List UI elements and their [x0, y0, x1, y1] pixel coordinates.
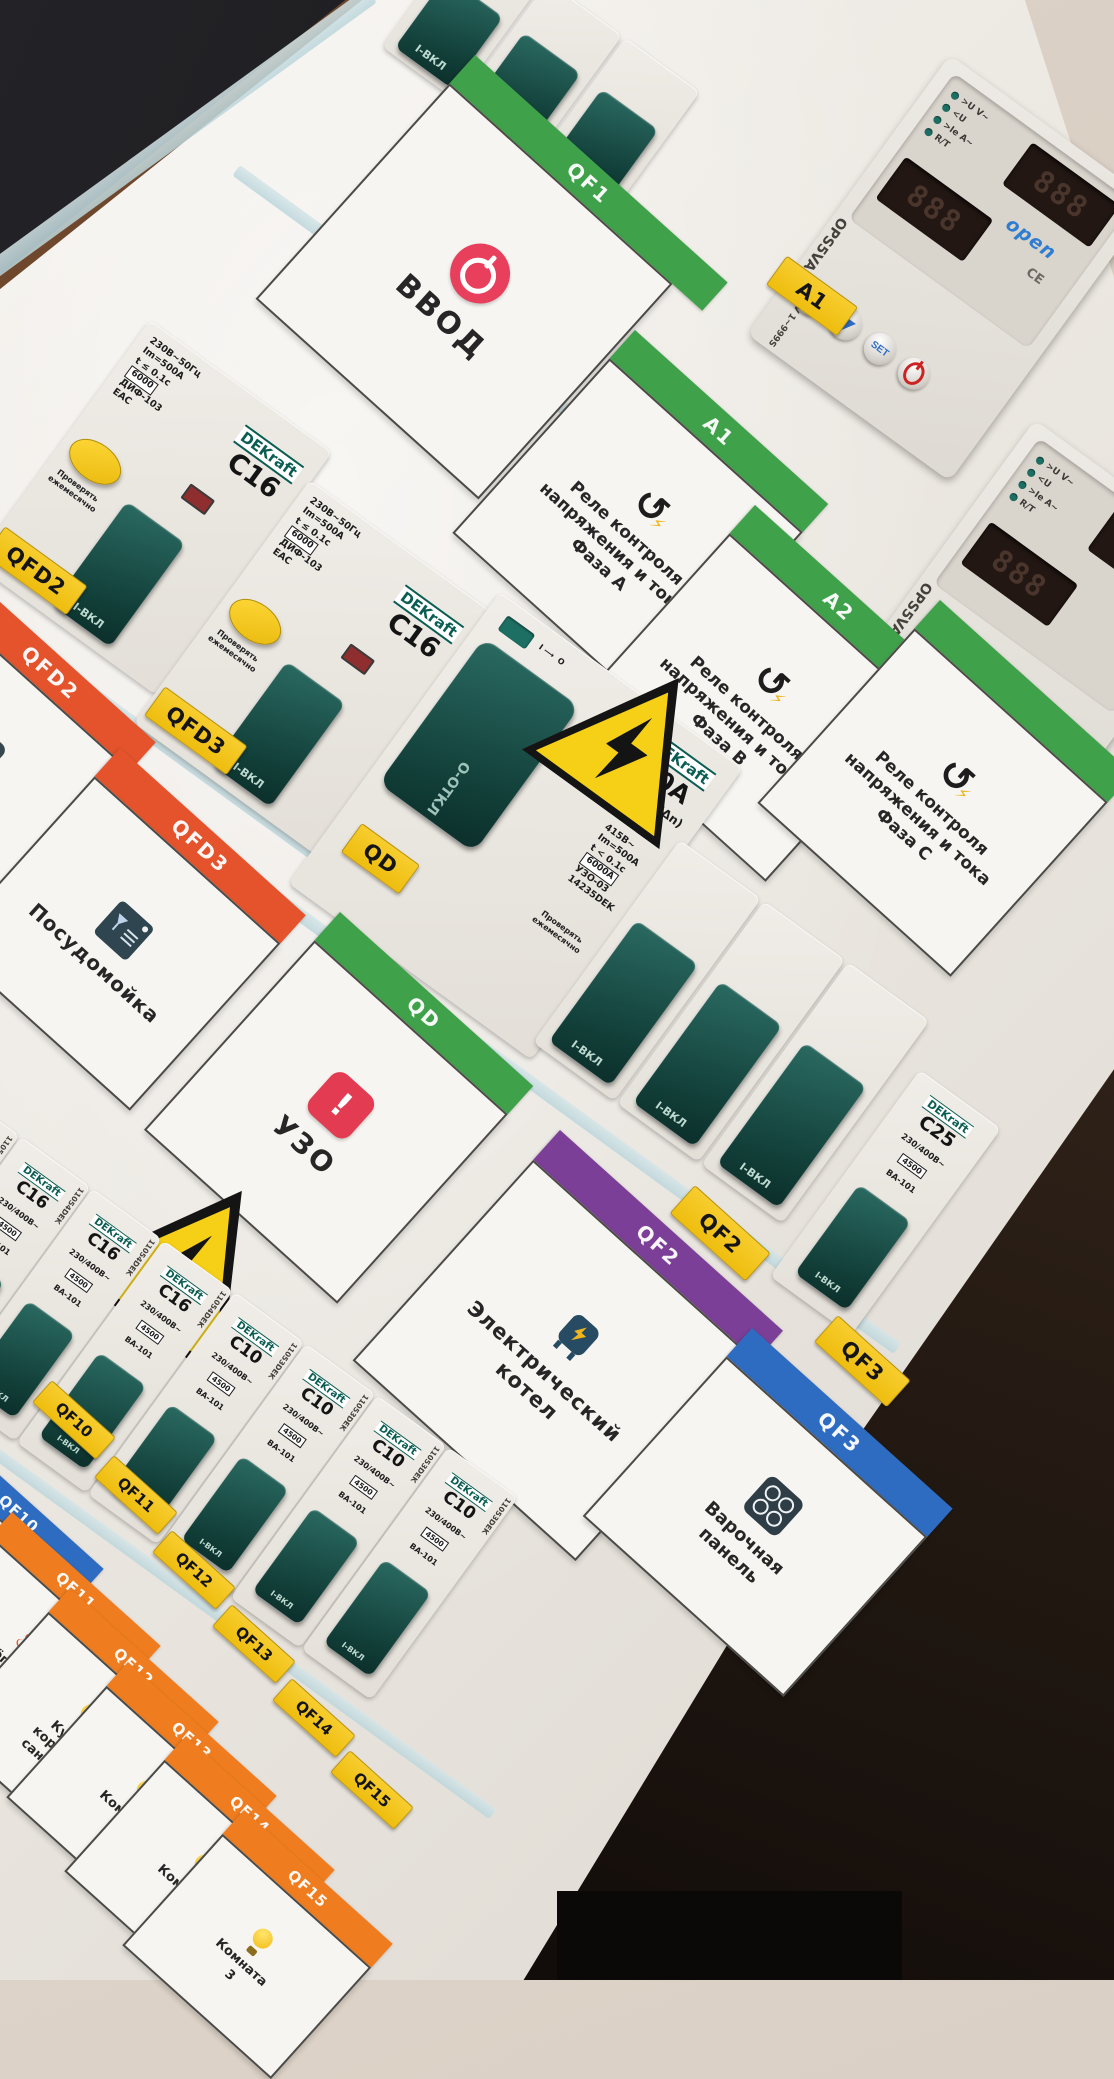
electric-boiler-icon — [543, 1305, 608, 1370]
set-button[interactable]: SET — [858, 327, 903, 372]
led-column: >U V~ <U >Ie A~ R/T — [919, 85, 995, 165]
ce-mark: CE — [1023, 265, 1047, 288]
dishwasher-icon — [93, 899, 155, 961]
current-display: 888 — [875, 156, 993, 262]
cooktop-icon — [741, 1474, 806, 1539]
boiler-icon — [0, 721, 10, 783]
breaker-brand-block: DEKraft C16 — [215, 425, 304, 510]
led-column: >U V~ <U >Ie A~ R/T — [1004, 450, 1080, 530]
sticker-qd: QD — [341, 823, 420, 894]
breaker-brand-block: DEKraft C16 — [375, 585, 464, 670]
dark-furniture — [557, 1891, 902, 1980]
trip-indicator-window — [180, 483, 215, 515]
relay-power-button[interactable] — [891, 351, 936, 396]
trip-indicator-window — [340, 643, 375, 675]
rcd-indicator-window — [497, 615, 535, 650]
current-display: 888 — [960, 521, 1078, 627]
test-note: Проверятьежемесячно — [525, 903, 593, 960]
on-off-marking: I ⟶ O — [536, 643, 566, 669]
power-icon — [899, 358, 929, 389]
voltage-display: 888 — [1087, 507, 1114, 613]
